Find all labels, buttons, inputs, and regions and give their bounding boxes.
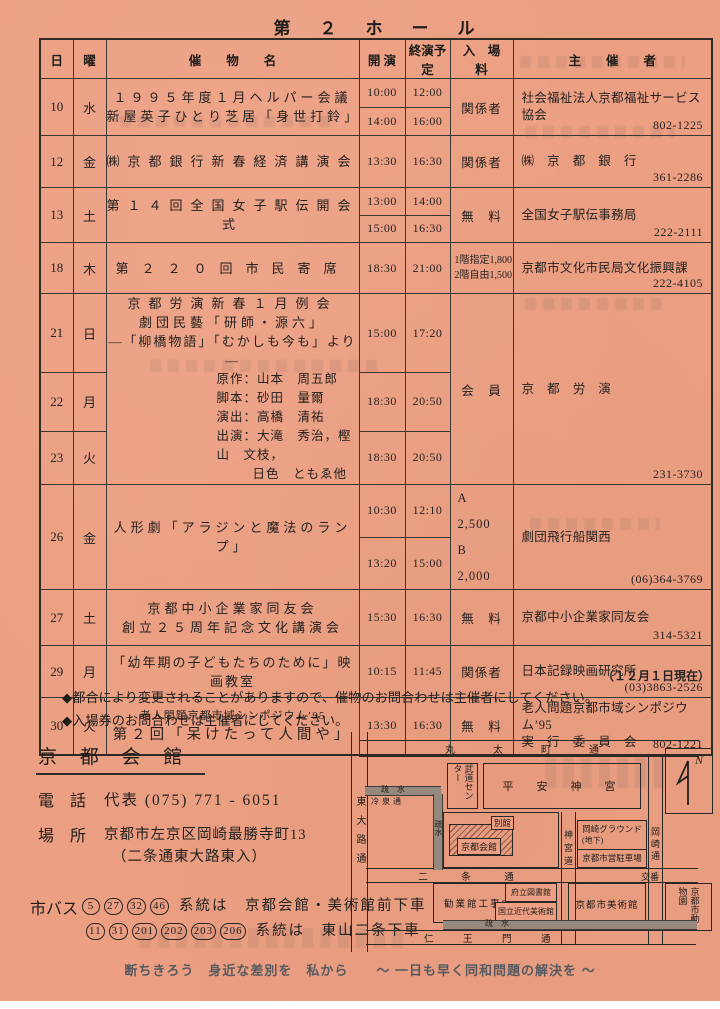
organizer-cell: 京都中小企業家同友会314-5321 — [513, 590, 712, 646]
canal-label: 疏 水 — [485, 918, 509, 929]
weekday-cell: 金 — [73, 485, 106, 590]
library-building: 府立図書館 — [505, 883, 557, 902]
day-cell: 10 — [40, 79, 73, 136]
start-time-cell: 18:30 — [359, 373, 405, 432]
organizer-cell: 京 都 労 演231-3730 — [513, 294, 712, 485]
start-time-cell: 10:30 — [359, 485, 405, 538]
compass-box: N — [665, 748, 713, 814]
fee-cell: 無 料 — [450, 188, 513, 243]
page-title: 第 ２ ホ ー ル — [40, 14, 714, 39]
weekday-cell: 水 — [73, 79, 106, 136]
event-name-line: 劇団民藝「研師・源六」 — [107, 313, 359, 332]
footer-slogan: 断ちきろう 身近な差別を 私から 〜 一日も早く同和問題の解決を 〜 — [0, 960, 720, 979]
fee-line: 無 料 — [451, 608, 513, 627]
day-cell: 21 — [40, 294, 73, 373]
day-cell: 27 — [40, 590, 73, 646]
bus-route-number: 27 — [104, 898, 123, 915]
end-time-cell: 14:00 — [405, 188, 450, 216]
budo-center-building: 武道センター — [447, 763, 478, 809]
weekday-cell: 木 — [73, 243, 106, 294]
fee-cell: 1階指定1,8002階自由1,500 — [450, 243, 513, 294]
annex-label: 別館 — [491, 816, 514, 830]
bus-route-number: 203 — [191, 923, 217, 940]
kyoto-kaikan-label: 京都会館 — [457, 838, 501, 855]
bus-route-number: 46 — [150, 898, 169, 915]
road-label: 仁 王 門 通 — [424, 931, 561, 945]
day-cell: 26 — [40, 485, 73, 590]
table-row: 26金人形劇「アラジンと魔法のランプ」10:3012:10A 2,500B 2,… — [40, 485, 712, 538]
bus-route-number: 31 — [109, 923, 128, 940]
day-cell: 13 — [40, 188, 73, 243]
okazaki-ground-parking: 岡崎グラウンド (地下) 京都市営駐車場 — [577, 820, 647, 868]
end-time-cell: 20:50 — [405, 431, 450, 484]
event-name-line: 第１４回全国女子駅伝開会式 — [107, 196, 359, 234]
tel-value: 代表 (075) 771 - 6051 — [104, 788, 282, 810]
bus-route-number: 201 — [132, 923, 158, 940]
sosui-canal — [443, 920, 697, 930]
event-name-line: 京都労演新春１月例会 — [107, 294, 359, 313]
road-label: 丸 太 町 通 — [445, 741, 613, 756]
table-row: 12金㈱京都銀行新春経済講演会13:3016:30関係者㈱ 京 都 銀 行361… — [40, 136, 712, 188]
building-label: 武道センター — [452, 764, 474, 808]
building-label: 府立図書館 — [511, 887, 551, 898]
table-header-row: 日 曜 催 物 名 開 演 終演予定 入 場 料 主 催 者 — [40, 39, 712, 79]
fee-line: 2階自由1,500 — [451, 268, 513, 283]
road-label: 東大路通 — [352, 732, 367, 952]
event-name-line: 第２２０回市民寄席 — [107, 259, 359, 278]
day-cell: 18 — [40, 243, 73, 294]
event-name-line: 京都中小企業家同友会 — [107, 599, 359, 618]
event-name-line: 脚本：砂田 量爾 — [107, 389, 359, 408]
end-time-cell: 16:30 — [405, 215, 450, 243]
bus-label: 市バス — [30, 895, 78, 919]
fee-cell: 関係者 — [450, 136, 513, 188]
organizer-name: 劇団飛行船関西 — [514, 529, 712, 546]
header-end: 終演予定 — [405, 39, 450, 79]
event-name-cell: １９９５年度１月ヘルパー会議新屋英子ひとり芝居「身世打鈴」 — [106, 79, 359, 136]
as-of-date: （１２月１日現在） — [545, 667, 710, 684]
end-time-cell: 16:30 — [405, 136, 450, 188]
event-name-line: 出演：大滝 秀治，樫山 文枝， — [107, 427, 359, 465]
road-higashioji: 東大路通 — [351, 732, 368, 952]
event-name-cell: 第２２０回市民寄席 — [106, 243, 359, 294]
start-time-cell: 15:00 — [359, 215, 405, 243]
organizer-name: 全国女子駅伝事務局 — [514, 207, 712, 224]
fee-cell: 関係者 — [450, 79, 513, 136]
underground-label: (地下) — [578, 835, 646, 846]
table-row: 13土第１４回全国女子駅伝開会式13:0014:00無 料全国女子駅伝事務局22… — [40, 188, 712, 216]
ground-label: 岡崎グラウンド — [578, 823, 646, 835]
end-time-cell: 20:50 — [405, 373, 450, 432]
header-event: 催 物 名 — [106, 39, 359, 79]
table-row: 27土京都中小企業家同友会創立２５周年記念文化講演会15:3016:30無 料京… — [40, 590, 712, 646]
road-okazakidori: 岡崎通 — [648, 755, 663, 945]
notes: ◆都合により変更されることがありますので、催物のお問合わせは主催者にしてください… — [62, 686, 598, 732]
start-time-cell: 15:00 — [359, 294, 405, 373]
end-time-cell: 17:20 — [405, 294, 450, 373]
event-name-line: 新屋英子ひとり芝居「身世打鈴」 — [107, 107, 359, 126]
organizer-cell: 劇団飛行船関西(06)364-3769 — [513, 485, 712, 590]
fee-line: 関係者 — [451, 98, 513, 117]
event-name-line: 日色 ともゑ他 — [107, 465, 359, 484]
header-fee: 入 場 料 — [450, 39, 513, 79]
header-weekday: 曜 — [73, 39, 106, 79]
organizer-phone: (06)364-3769 — [631, 572, 703, 587]
end-time-cell: 21:00 — [405, 243, 450, 294]
canal-label: 疏 水 — [381, 784, 405, 795]
building-label: 平 安 神 宮 — [503, 778, 622, 794]
fee-cell: A 2,500B 2,000 — [450, 485, 513, 590]
road-label: 岡崎通 — [649, 755, 662, 945]
end-time-cell: 12:10 — [405, 485, 450, 538]
events-table-body: 10水１９９５年度１月ヘルパー会議新屋英子ひとり芝居「身世打鈴」10:0012:… — [40, 79, 712, 755]
day-cell: 23 — [40, 431, 73, 484]
venue-address: 京都市左京区岡崎最勝寺町13 — [104, 823, 307, 844]
organizer-cell: 全国女子駅伝事務局222-2111 — [513, 188, 712, 243]
table-row: 18木第２２０回市民寄席18:3021:001階指定1,8002階自由1,500… — [40, 243, 712, 294]
bus-route-circles: 1131201202203206 — [86, 923, 250, 939]
end-time-cell: 12:00 — [405, 79, 450, 108]
bus-route-number: 11 — [86, 923, 105, 940]
building-label: 国立近代美術館 — [498, 906, 554, 917]
event-name-line: １９９５年度１月ヘルパー会議 — [107, 88, 359, 107]
fee-line: A 2,500 — [451, 485, 513, 537]
flyer-page: 第 ２ ホ ー ル 日 曜 催 物 名 開 演 終演予定 入 場 料 主 催 者… — [0, 0, 720, 1001]
venue-address-note: （二条通東大路東入） — [112, 845, 267, 866]
parking-label: 京都市営駐車場 — [578, 849, 646, 864]
event-name-line: 「幼年期の子どもたちのために」映画教室 — [107, 653, 359, 691]
fee-line: 関係者 — [451, 152, 513, 171]
organizer-phone: 222-4105 — [653, 276, 703, 291]
event-name-line: ㈱京都銀行新春経済講演会 — [107, 152, 359, 171]
fee-line: 無 料 — [451, 206, 513, 225]
start-time-cell: 14:00 — [359, 107, 405, 136]
weekday-cell: 火 — [73, 431, 106, 484]
organizer-phone: 361-2286 — [653, 170, 703, 185]
bus-route-number: 32 — [127, 898, 146, 915]
koban-label: 交番 — [641, 870, 659, 883]
heian-jingu-building: 平 安 神 宮 — [483, 763, 641, 809]
events-table: 日 曜 催 物 名 開 演 終演予定 入 場 料 主 催 者 10水１９９５年度… — [39, 38, 713, 756]
start-time-cell: 15:30 — [359, 590, 405, 646]
building-label: 京都市美術館 — [575, 897, 638, 911]
organizer-name: 京都市文化市民局文化振興課 — [514, 260, 712, 277]
bus-route-number: 206 — [220, 923, 246, 940]
tel-label: 電 話 — [38, 787, 86, 811]
header-day: 日 — [40, 39, 73, 79]
note-line: ◆入場券のお問合わせは主催者にしてください。 — [62, 709, 598, 732]
weekday-cell: 日 — [73, 294, 106, 373]
fee-line: 会 員 — [451, 380, 513, 399]
header-organizer: 主 催 者 — [513, 39, 712, 79]
organizer-name: 京都中小企業家同友会 — [514, 609, 712, 626]
venue-name: 京 都 会 館 — [36, 742, 205, 775]
organizer-phone: 231-3730 — [653, 467, 703, 482]
organizer-phone: 314-5321 — [653, 628, 703, 643]
bus-route-number: 5 — [82, 898, 100, 915]
event-name-cell: 人形劇「アラジンと魔法のランプ」 — [106, 485, 359, 590]
day-cell: 12 — [40, 136, 73, 188]
start-time-cell: 13:30 — [359, 136, 405, 188]
road-reisen-label: 冷泉通 — [371, 796, 404, 807]
end-time-cell: 15:00 — [405, 537, 450, 590]
bus-route-number: 202 — [161, 923, 187, 940]
bus-route-circles: 5273246 — [82, 898, 173, 914]
start-time-cell: 18:30 — [359, 243, 405, 294]
event-name-line: 創立２５周年記念文化講演会 — [107, 618, 359, 637]
organizer-phone: 222-2111 — [654, 225, 703, 240]
start-time-cell: 18:30 — [359, 431, 405, 484]
start-time-cell: 10:00 — [359, 79, 405, 108]
fee-cell: 会 員 — [450, 294, 513, 485]
event-name-cell: 京都中小企業家同友会創立２５周年記念文化講演会 — [106, 590, 359, 646]
event-name-cell: 第１４回全国女子駅伝開会式 — [106, 188, 359, 243]
place-label: 場 所 — [38, 822, 86, 846]
start-time-cell: 13:20 — [359, 537, 405, 590]
header-start: 開 演 — [359, 39, 405, 79]
weekday-cell: 土 — [73, 590, 106, 646]
road-label: 二 条 通 — [418, 869, 526, 883]
organizer-name: 京 都 労 演 — [514, 381, 712, 398]
organizer-cell: 社会福祉法人京都福祉サービス協会802-1225 — [513, 79, 712, 136]
weekday-cell: 金 — [73, 136, 106, 188]
fee-cell: 無 料 — [450, 590, 513, 646]
table-row: 10水１９９５年度１月ヘルパー会議新屋英子ひとり芝居「身世打鈴」10:0012:… — [40, 79, 712, 108]
art-museum-building: 京都市美術館 — [568, 883, 646, 925]
road-niomon: 仁 王 門 通 — [366, 930, 696, 945]
weekday-cell: 月 — [73, 373, 106, 432]
event-name-cell: 京都労演新春１月例会劇団民藝「研師・源六」―「柳橋物語」「むかしも今も」より ―… — [106, 294, 359, 485]
event-name-line: 人形劇「アラジンと魔法のランプ」 — [107, 518, 359, 556]
event-name-line: 演出：高橋 清祐 — [107, 408, 359, 427]
compass-arrow-icon — [674, 757, 700, 809]
note-line: ◆都合により変更されることがありますので、催物のお問合わせは主催者にしてください… — [62, 686, 598, 709]
organizer-cell: 京都市文化市民局文化振興課222-4105 — [513, 243, 712, 294]
event-name-line: ―「柳橋物語」「むかしも今も」より ― — [107, 332, 359, 370]
end-time-cell: 16:30 — [405, 590, 450, 646]
event-name-line: 原作：山本 周五郎 — [107, 370, 359, 389]
table-row: 21日京都労演新春１月例会劇団民藝「研師・源六」―「柳橋物語」「むかしも今も」よ… — [40, 294, 712, 373]
fee-line: 1階指定1,800 — [451, 253, 513, 268]
end-time-cell: 16:00 — [405, 107, 450, 136]
weekday-cell: 土 — [73, 188, 106, 243]
start-time-cell: 13:00 — [359, 188, 405, 216]
fee-line: 関係者 — [451, 662, 513, 681]
event-name-cell: ㈱京都銀行新春経済講演会 — [106, 136, 359, 188]
organizer-name: ㈱ 京 都 銀 行 — [514, 153, 712, 170]
access-map: 丸 太 町 通 東大路通 神宮道 岡崎通 二 条 通 仁 王 門 通 疏 水 冷… — [345, 732, 717, 952]
organizer-cell: ㈱ 京 都 銀 行361-2286 — [513, 136, 712, 188]
fee-line: B 2,000 — [451, 537, 513, 589]
organizer-phone: 802-1225 — [653, 118, 703, 133]
day-cell: 22 — [40, 373, 73, 432]
